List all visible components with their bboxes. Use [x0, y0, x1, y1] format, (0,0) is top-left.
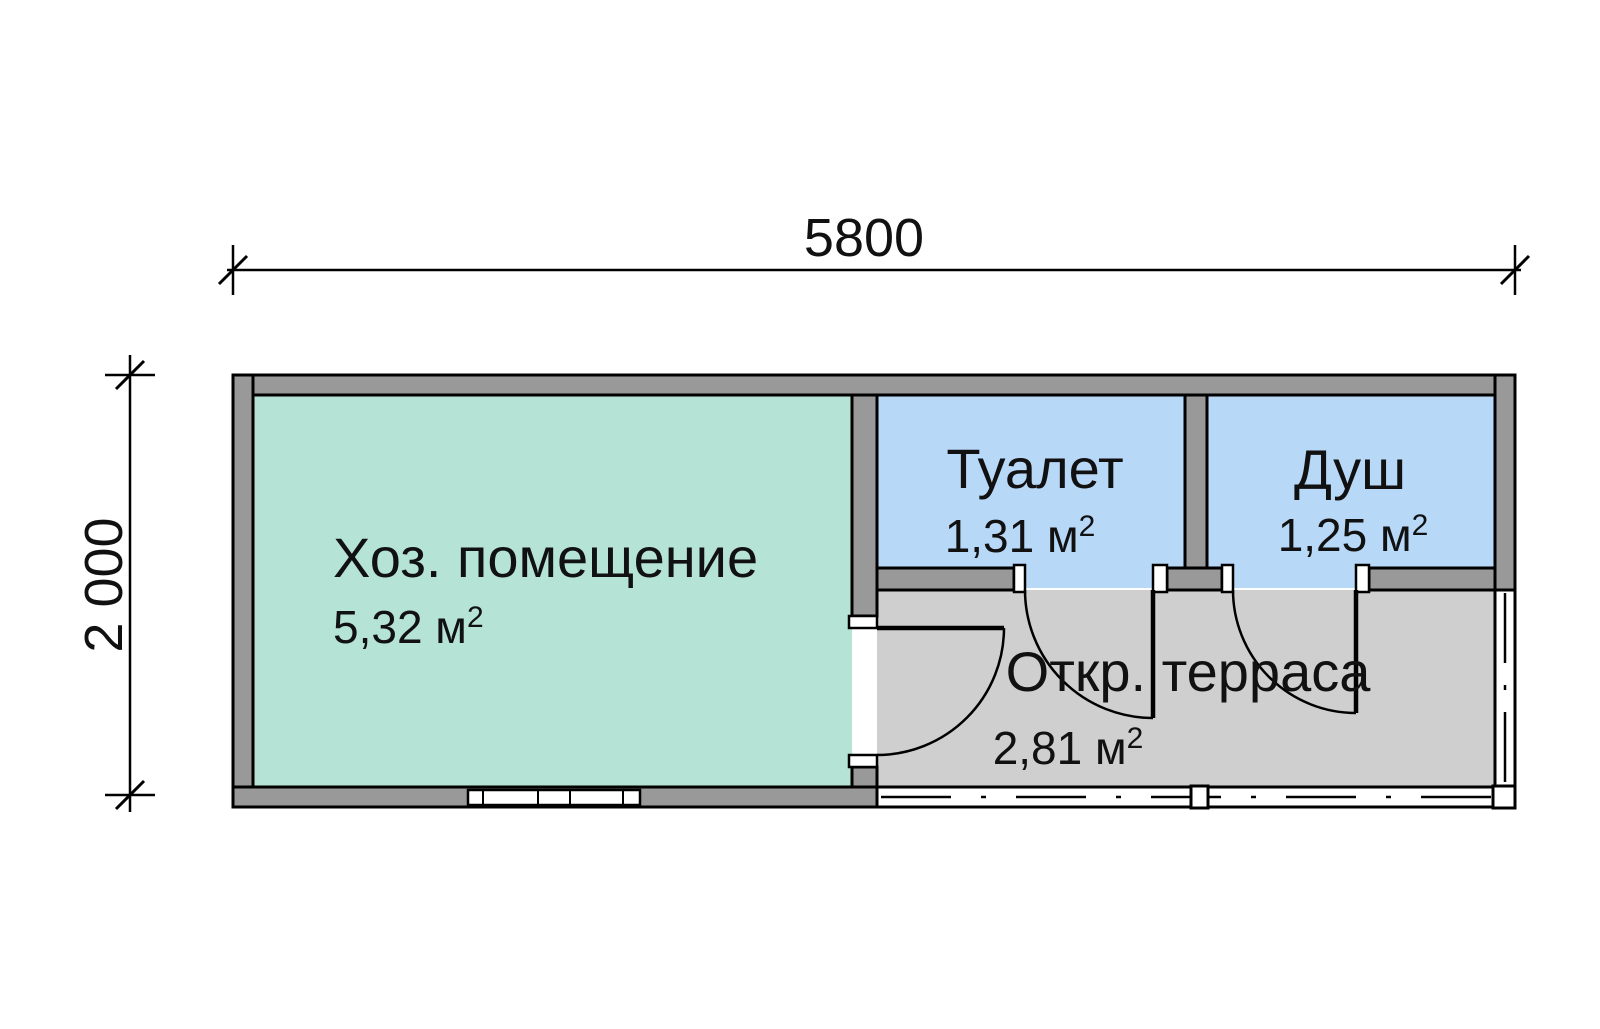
area-value: 2,81 м: [993, 722, 1127, 774]
utility-room-name: Хоз. помещение: [333, 526, 758, 589]
terrace-area: 2,81 м2: [993, 722, 1144, 774]
utility-room-area: 5,32 м2: [333, 601, 484, 653]
wall-utility-terrace-lower: [852, 767, 877, 787]
shower-door-jamb-left: [1222, 565, 1233, 592]
terrace-name: Откр. терраса: [1006, 640, 1372, 703]
dimension-left: 2 000: [74, 355, 155, 812]
area-value: 1,25 м: [1278, 509, 1412, 561]
area-superscript: 2: [1079, 510, 1096, 543]
shower-doorway-floor: [1233, 568, 1356, 588]
wall-top: [233, 375, 1515, 395]
wall-right: [1495, 375, 1515, 590]
area-superscript: 2: [1127, 722, 1144, 755]
terrace-corner-post: [1493, 786, 1515, 808]
shower-room-name: Душ: [1294, 438, 1406, 501]
floor-plan-drawing: 5800 2 000 Хоз. помещение 5,32 м2 Туалет…: [0, 0, 1600, 1029]
terrace-post: [1191, 786, 1208, 808]
wall-utility-terrace-upper: [852, 395, 877, 616]
utility-door-jamb-top: [849, 616, 877, 628]
utility-window-frame: [468, 790, 640, 805]
area-value: 5,32 м: [333, 601, 467, 653]
wall-wetrooms-bottom-center: [1167, 568, 1222, 590]
area-superscript: 2: [467, 601, 484, 634]
dimension-height-label: 2 000: [74, 517, 134, 652]
shower-door-jamb-right: [1356, 565, 1369, 592]
dimension-width-label: 5800: [804, 208, 924, 268]
wall-toilet-shower-divider: [1185, 395, 1207, 568]
utility-window: [468, 790, 640, 805]
wall-wetrooms-bottom-left: [877, 568, 1014, 590]
area-superscript: 2: [1412, 509, 1429, 542]
toilet-doorway-floor: [1025, 568, 1153, 588]
toilet-room-area: 1,31 м2: [945, 510, 1096, 562]
area-value: 1,31 м: [945, 510, 1079, 562]
wall-wetrooms-bottom-right: [1369, 568, 1495, 590]
utility-room-floor: [253, 395, 852, 787]
page: 5800 2 000 Хоз. помещение 5,32 м2 Туалет…: [0, 0, 1600, 1029]
toilet-room-name: Туалет: [946, 437, 1123, 500]
wall-left: [233, 375, 253, 807]
toilet-door-jamb-left: [1014, 565, 1025, 592]
utility-door-jamb-bottom: [849, 755, 877, 767]
shower-room-area: 1,25 м2: [1278, 509, 1429, 561]
toilet-door-jamb-right: [1153, 565, 1167, 592]
dimension-top: 5800: [219, 208, 1529, 295]
